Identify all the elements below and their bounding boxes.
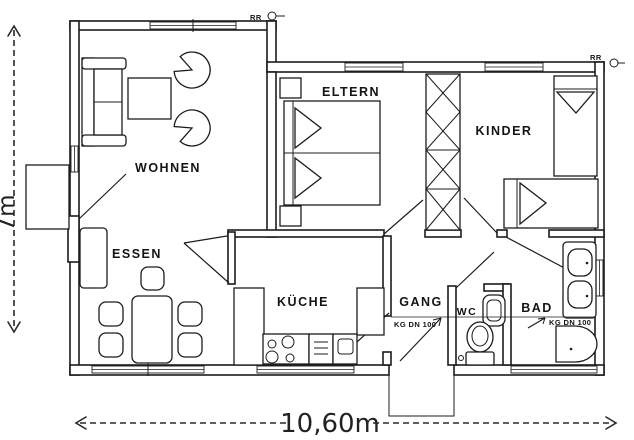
wall-bedrooms-4 [549,230,604,237]
wall-bedrooms-2 [425,230,461,237]
room-label-gang: GANG [399,295,443,309]
toilet-tank [466,352,494,365]
dimension-height-label: 7m [0,194,20,231]
rr-pipe-icon-right [610,59,618,67]
door-swing-essen-b [184,243,229,283]
room-label-kueche: KÜCHE [277,294,329,309]
rr-label-right: RR [590,53,602,62]
sofa-back [82,58,94,146]
kitchen-drawer-unit [309,334,333,364]
armchair-2 [170,105,215,151]
rr-symbols [268,12,625,67]
wohnen-furniture [82,47,216,150]
dining-chair-right-2 [178,333,202,357]
door-swing-kinder [464,198,497,233]
room-label-bad: BAD [521,301,553,315]
drain-arrow-bad [528,318,545,328]
vanity-basin-2 [568,281,592,308]
floor-plan-page: WOHNEN ESSEN ELTERN KINDER KÜCHE GANG WC… [0,0,634,440]
wall-gang-wc [448,286,456,365]
sofa-armrest-top [82,58,126,69]
rr-label-left: RR [250,13,262,22]
sofa-armrest-bottom [82,135,126,146]
basin-drain-1 [586,262,589,265]
wall-top-right-block [267,62,604,72]
entrance-step [389,375,454,416]
door-swing-terrace [79,174,126,219]
wardrobe-body [426,74,460,230]
basin-drain-2 [586,295,589,298]
floor-plan-drawing: WOHNEN ESSEN ELTERN KINDER KÜCHE GANG WC… [0,0,634,440]
dimension-height-arrow [8,26,20,332]
terrace-step [26,165,69,229]
sideboard [80,228,107,288]
bad-fixtures [556,242,597,362]
dining-chair-left-2 [99,333,123,357]
toilet-pipe [459,356,464,361]
eltern-furniture [280,78,380,226]
bathtub-drain [570,348,573,351]
dining-chair-right-1 [178,302,202,326]
wall-left [70,21,79,375]
nightstand-2 [280,206,301,226]
wall-essen-hall [228,232,235,284]
room-label-eltern: ELTERN [322,85,380,99]
room-label-kinder: KINDER [476,124,533,138]
door-post-terrace [68,216,79,262]
wall-bedrooms-1 [228,230,384,237]
dining-chair-left-1 [99,302,123,326]
kinder-furniture [504,76,598,228]
door-swing-essen-a [184,236,227,243]
door-swing-eltern [384,200,423,234]
wall-wc-bad [503,284,511,365]
kg-label-gang: KG DN 100 [394,320,436,329]
nightstand-1 [280,78,301,98]
essen-furniture [26,165,202,363]
vanity-basin-1 [568,249,592,276]
wall-bedrooms-3 [497,230,507,237]
armchair-1 [170,47,215,93]
tall-cabinet [234,288,264,365]
room-label-wohnen: WOHNEN [135,161,201,175]
bathtub [556,326,597,362]
dining-chair-top [141,267,164,290]
room-label-wc: WC [457,306,478,318]
kg-label-bad: KG DN 100 [549,318,591,327]
dimension-width-label: 10,60m [280,409,380,439]
room-label-essen: ESSEN [112,247,162,261]
single-bed-horizontal [504,179,598,228]
wall-wohnen-eltern [267,72,276,237]
kitchen-cabinet [357,288,384,335]
wall-kueche-gang-lower [383,352,391,365]
coffee-table [128,78,171,119]
wardrobe [426,74,460,230]
door-swing-wc [456,252,494,288]
dining-table [132,296,172,363]
rr-pipe-icon-left [268,12,276,20]
single-bed-vertical [554,76,597,176]
